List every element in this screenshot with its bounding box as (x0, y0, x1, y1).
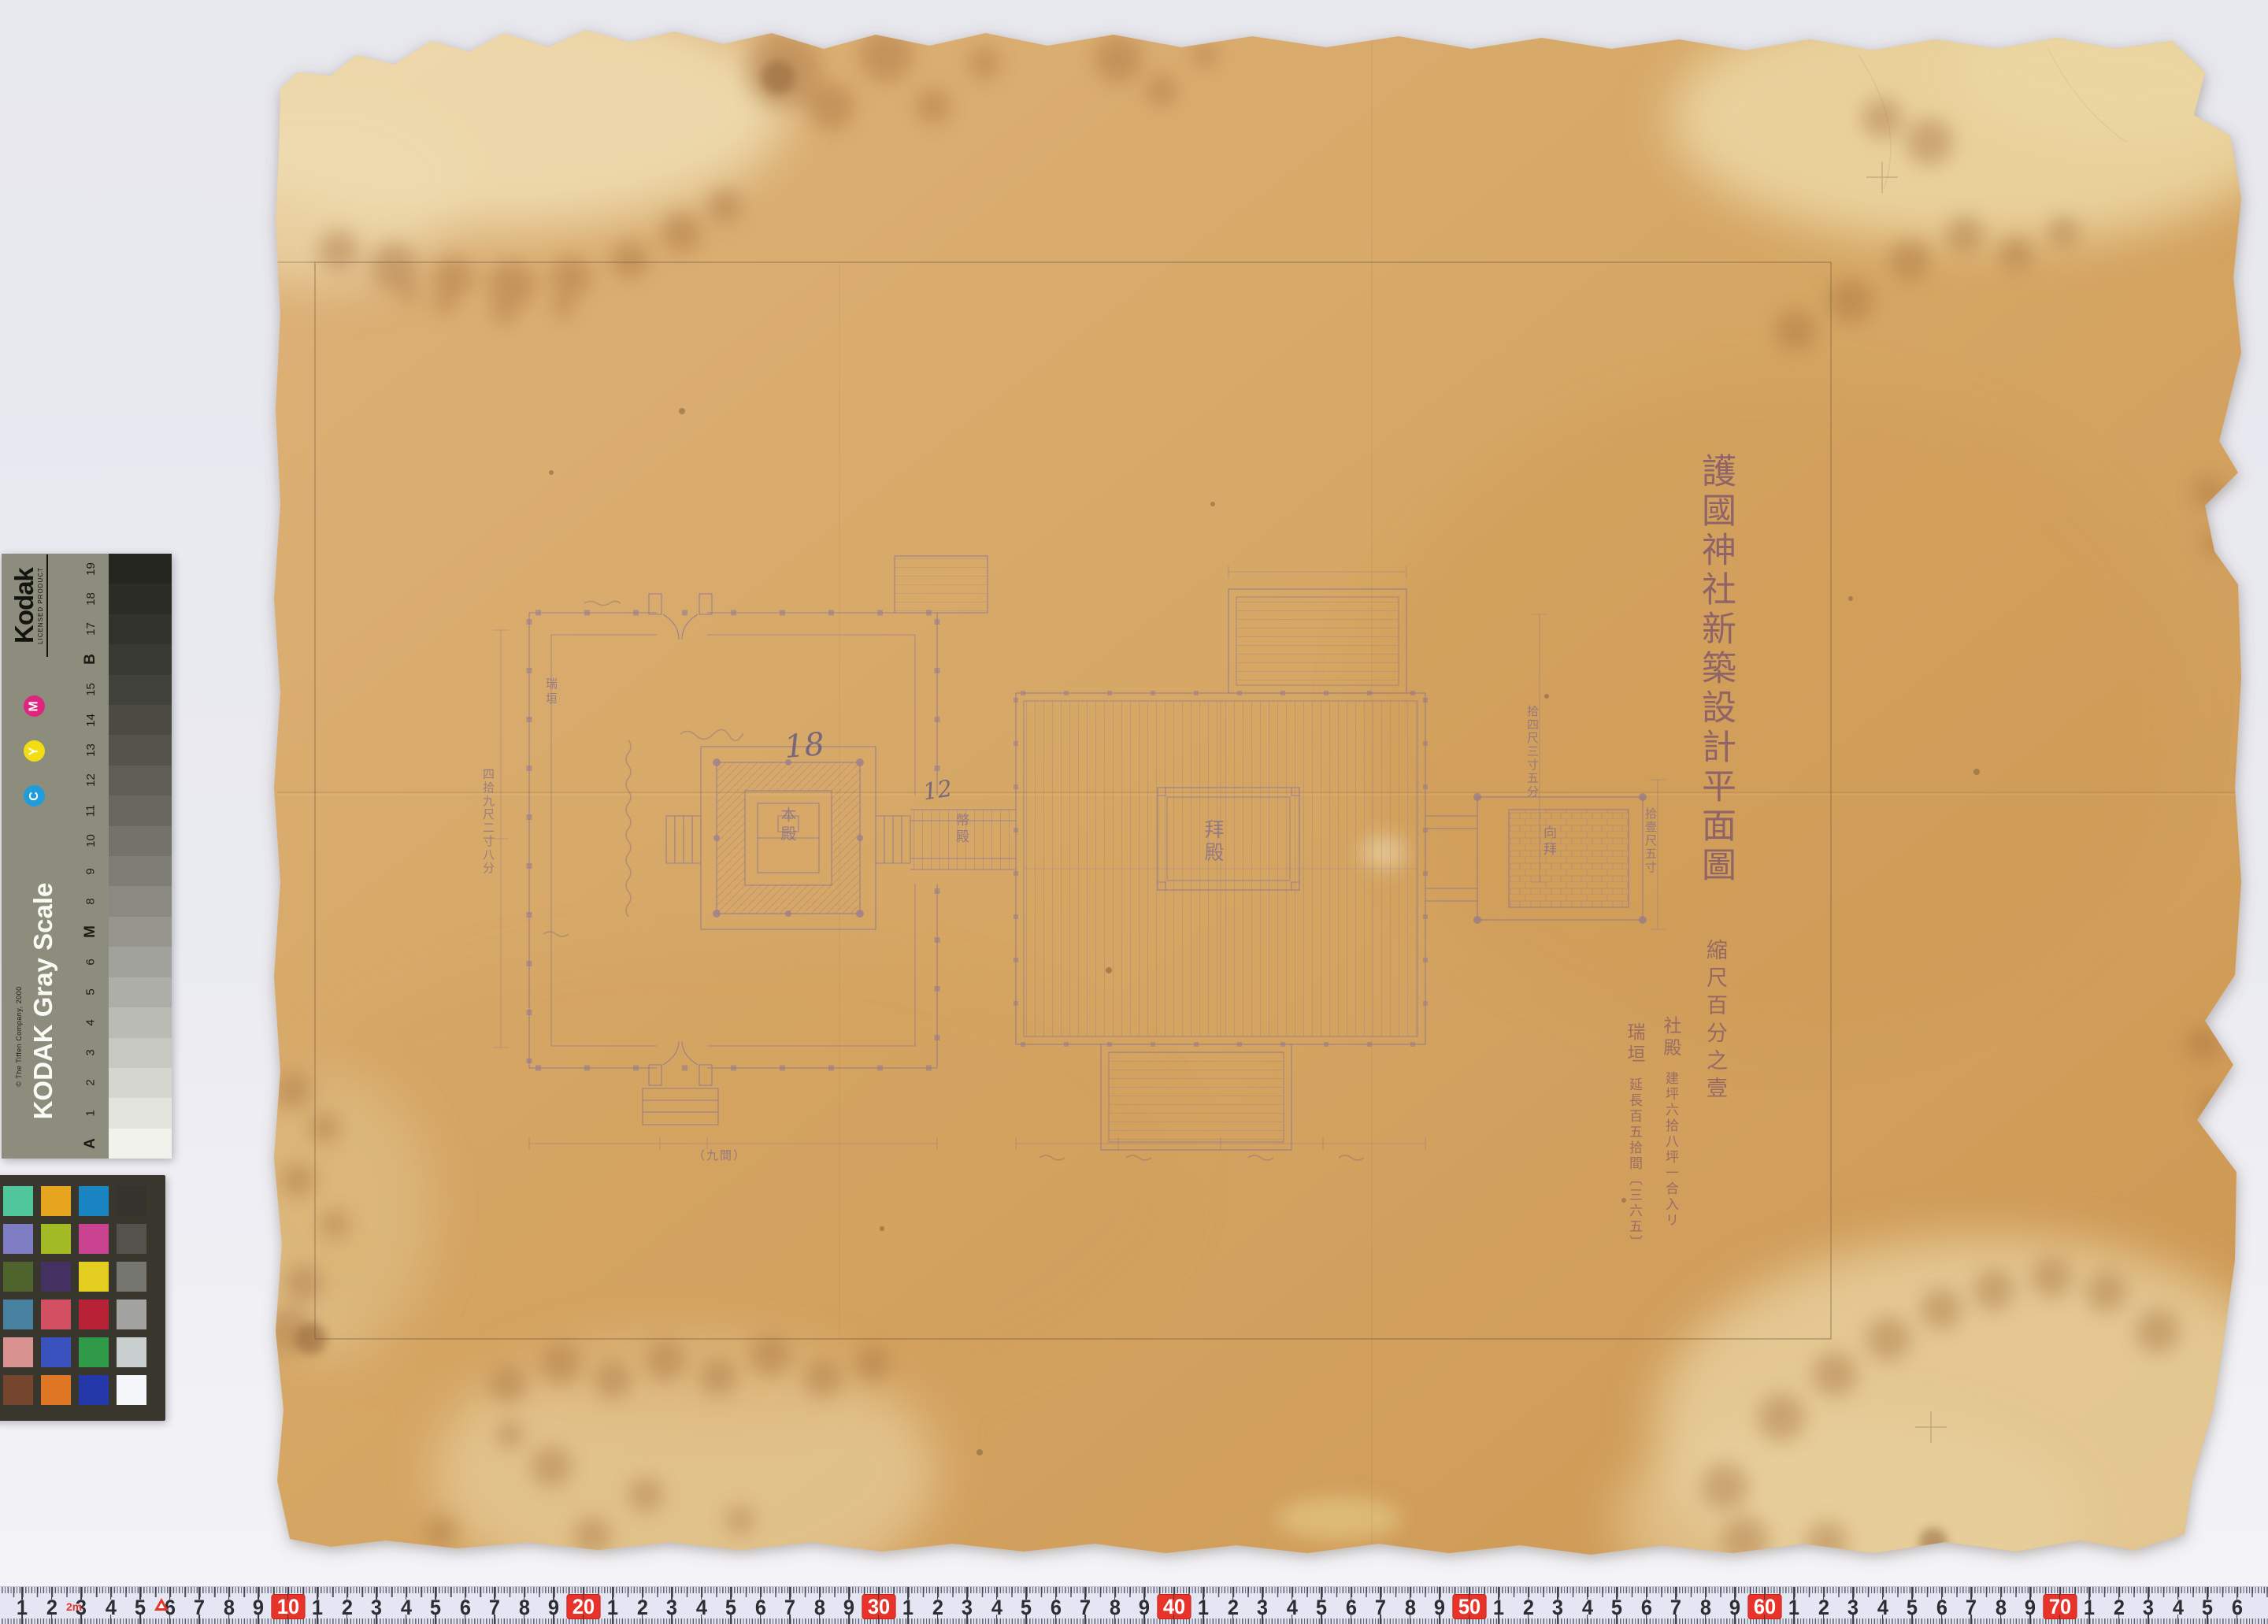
ruler-cm-tick (2118, 1615, 2120, 1624)
ruler-cm-tick (1793, 1587, 1795, 1600)
ruler-cm-tick (139, 1615, 141, 1624)
blueprint-paper (0, 0, 2268, 1624)
gray-scale-step-label: 11 (77, 795, 104, 825)
ruler-cm-tick (258, 1587, 259, 1600)
ruler-cm-tick (21, 1587, 23, 1600)
ruler-cm-tick (110, 1587, 112, 1600)
ruler-cm-tick (317, 1615, 318, 1624)
ruler-cm-tick (406, 1587, 407, 1600)
annotation-mizugaki-label: 瑞垣 (1624, 1022, 1644, 1066)
gray-scale-step-label: 14 (77, 705, 104, 735)
ruler-cm-tick (730, 1587, 732, 1600)
ruler-cm-tick (996, 1615, 998, 1624)
ruler-cm-tick (80, 1615, 82, 1624)
color-patch (3, 1337, 33, 1367)
ruler-cm-tick (1143, 1615, 1145, 1624)
gray-patch (109, 1038, 172, 1068)
ruler-triangle-mark-icon (154, 1598, 169, 1611)
y-ink-dot-icon: Y (24, 740, 45, 762)
ruler-cm-tick (1380, 1615, 1381, 1624)
ruler-cm-tick (701, 1587, 702, 1600)
color-patch (117, 1262, 146, 1292)
kodak-brand-block: Kodak LICENSED PRODUCT (12, 554, 53, 657)
ruler-cm-tick (878, 1587, 880, 1600)
gray-patch (109, 826, 172, 856)
ruler-cm-tick (1941, 1615, 1943, 1624)
ruler-cm-tick (1351, 1587, 1352, 1600)
color-patch (3, 1300, 33, 1329)
ruler-cm-tick (1321, 1615, 1322, 1624)
ruler-cm-tick (1705, 1587, 1707, 1600)
ruler-cm-tick (2148, 1587, 2149, 1600)
ruler-cm-tick (524, 1587, 525, 1600)
gray-scale-step-label: 19 (77, 554, 104, 584)
gray-patch (109, 614, 172, 644)
cmy-dots: MYC (24, 695, 47, 821)
gray-scale-copyright: © The Tiffen Company, 2000 (14, 946, 25, 1127)
ruler-cm-tick (1055, 1615, 1057, 1624)
ruler-cm-tick (1941, 1587, 1943, 1600)
ruler-cm-tick (110, 1615, 112, 1624)
ruler-cm-tick (1970, 1615, 1972, 1624)
gray-scale-step-label: A (77, 1129, 104, 1159)
ruler-cm-tick (2118, 1587, 2120, 1600)
ruler-cm-tick (1764, 1615, 1766, 1624)
ruler-cm-tick (937, 1615, 939, 1624)
ruler-cm-tick (671, 1615, 673, 1624)
ruler-cm-tick (1439, 1587, 1440, 1600)
ruler-cm-tick (1410, 1615, 1411, 1624)
dimension-left-text: 四拾九尺二寸八分 (480, 768, 497, 925)
gray-patch (109, 1129, 172, 1159)
gray-scale-step-label: 2 (77, 1068, 104, 1098)
ruler-cm-tick (51, 1587, 53, 1600)
annotation-mizugaki-value: 延長百五拾間〔三六五〕 (1626, 1077, 1642, 1251)
ruler-cm-tick (1262, 1587, 1263, 1600)
ruler-cm-tick (1528, 1587, 1529, 1600)
ruler-cm-tick (2088, 1615, 2090, 1624)
color-patch (117, 1186, 146, 1216)
ruler-cm-tick (287, 1587, 289, 1600)
ruler-cm-tick (583, 1587, 584, 1600)
measuring-ruler: 1234567891012345678920123456789301234567… (0, 1586, 2268, 1624)
ruler-cm-tick (465, 1615, 466, 1624)
ruler-cm-tick (1439, 1615, 1440, 1624)
ruler-cm-tick (1143, 1587, 1145, 1600)
ruler-cm-tick (228, 1587, 230, 1600)
ruler-cm-tick (465, 1587, 466, 1600)
annotation-shaden-value: 建坪六拾八坪一合入リ (1662, 1071, 1678, 1229)
ruler-cm-tick (1557, 1587, 1558, 1600)
gray-patch (109, 1098, 172, 1128)
ruler-cm-tick (169, 1587, 171, 1600)
ruler-cm-tick (907, 1587, 909, 1600)
gray-scale-step-label: 13 (77, 735, 104, 765)
ruler-cm-tick (21, 1615, 23, 1624)
room-label-haiden: 拜殿 (1199, 819, 1227, 898)
ruler-cm-tick (789, 1587, 791, 1600)
ruler-cm-tick (966, 1615, 968, 1624)
room-label-honden: 本殿 (776, 806, 799, 877)
annotation-shaden: 社殿建坪六拾八坪一合入リ (1657, 1016, 1684, 1347)
ruler-cm-tick (1882, 1615, 1884, 1624)
ruler-cm-tick (2000, 1587, 2002, 1600)
color-patch (79, 1262, 109, 1292)
ruler-cm-tick (2177, 1615, 2179, 1624)
ruler-cm-tick (642, 1587, 643, 1600)
ruler-cm-tick (1351, 1615, 1352, 1624)
kodak-logo: Kodak (12, 554, 37, 657)
ruler-cm-tick (1823, 1587, 1825, 1600)
ruler-cm-tick (1114, 1587, 1116, 1600)
color-patch (3, 1375, 33, 1405)
ruler-cm-tick (2029, 1615, 2031, 1624)
color-patch (117, 1337, 146, 1367)
gray-scale-step-label: 10 (77, 826, 104, 856)
ruler-cm-tick (1173, 1587, 1175, 1600)
ruler-cm-tick (1675, 1587, 1677, 1600)
pencil-mark-18: 18 (783, 726, 826, 766)
ruler-cm-tick (346, 1615, 348, 1624)
ruler-cm-tick (2207, 1587, 2208, 1600)
gray-scale-step-label: 6 (77, 947, 104, 977)
drawing-title: 護國神社新築設計平面圖 (1690, 453, 1740, 933)
room-label-mizugaki: 瑞垣 (543, 677, 560, 726)
ruler-cm-tick (406, 1615, 407, 1624)
ruler-cm-tick (139, 1587, 141, 1600)
gray-patch (109, 1007, 172, 1037)
ruler-cm-tick (789, 1615, 791, 1624)
ruler-cm-tick (848, 1615, 850, 1624)
ruler-cm-tick (819, 1587, 821, 1600)
color-patch (79, 1186, 109, 1216)
ruler-cm-tick (1616, 1615, 1618, 1624)
gray-scale-labels: 191817B15141312111098M654321A (77, 554, 104, 1159)
kodak-licensed-product-label: LICENSED PRODUCT (37, 554, 48, 657)
ruler-cm-tick (1203, 1587, 1204, 1600)
color-patch (117, 1300, 146, 1329)
ruler-cm-tick (1734, 1587, 1736, 1600)
color-patch (79, 1337, 109, 1367)
gray-patch (109, 735, 172, 765)
kodak-gray-scale-card: Kodak LICENSED PRODUCT KODAK Gray Scale … (2, 554, 172, 1159)
gray-patch (109, 795, 172, 825)
ruler-cm-tick (1469, 1587, 1470, 1600)
ruler-cm-tick (376, 1587, 377, 1600)
dimension-bottom-text: （九間） (693, 1147, 747, 1163)
ruler-cm-tick (1528, 1615, 1529, 1624)
scale-note: 縮尺百分之壹 (1699, 939, 1730, 1136)
annotation-shaden-label: 社殿 (1660, 1016, 1681, 1060)
ruler-cm-tick (80, 1587, 82, 1600)
ruler-cm-tick (2088, 1587, 2090, 1600)
gray-patch (109, 584, 172, 614)
ruler-cm-tick (1823, 1615, 1825, 1624)
ruler-cm-tick (642, 1615, 643, 1624)
ruler-cm-tick (1616, 1587, 1618, 1600)
ruler-cm-tick (1380, 1587, 1381, 1600)
gray-scale-step-label: 4 (77, 1007, 104, 1037)
ruler-cm-tick (198, 1615, 200, 1624)
gray-patch (109, 947, 172, 977)
gray-patch (109, 554, 172, 584)
room-label-kohai: 向拜 (1539, 825, 1558, 885)
ruler-meter-label: 2m (66, 1600, 82, 1613)
ruler-cm-tick (1734, 1615, 1736, 1624)
ruler-cm-tick (346, 1587, 348, 1600)
ruler-cm-tick (1055, 1587, 1057, 1600)
ruler-cm-tick (1262, 1615, 1263, 1624)
annotation-mizugaki: 瑞垣延長百五拾間〔三六五〕 (1621, 1022, 1647, 1353)
color-patch (41, 1375, 71, 1405)
ruler-cm-tick (1173, 1615, 1175, 1624)
ruler-cm-tick (2029, 1587, 2031, 1600)
ruler-cm-tick (966, 1587, 968, 1600)
gray-patch (109, 886, 172, 916)
ruler-cm-tick (1852, 1615, 1854, 1624)
scanned-document-photo: 護國神社新築設計平面圖 縮尺百分之壹 社殿建坪六拾八坪一合入リ 瑞垣延長百五拾間… (0, 0, 2268, 1624)
ruler-cm-tick (907, 1615, 909, 1624)
ruler-cm-tick (2236, 1615, 2238, 1624)
ruler-cm-tick (1498, 1587, 1499, 1600)
ruler-cm-tick (1498, 1615, 1499, 1624)
ruler-cm-tick (583, 1615, 584, 1624)
ruler-cm-tick (2059, 1587, 2061, 1600)
ruler-cm-tick (819, 1615, 821, 1624)
ruler-cm-tick (1025, 1587, 1027, 1600)
ruler-cm-tick (730, 1615, 732, 1624)
ruler-cm-tick (878, 1615, 880, 1624)
color-checker-grid (3, 1186, 146, 1405)
ruler-cm-tick (1203, 1615, 1204, 1624)
ruler-cm-tick (1469, 1615, 1470, 1624)
ruler-cm-tick (701, 1615, 702, 1624)
gray-scale-step-label: 9 (77, 856, 104, 886)
pencil-mark-12: 12 (921, 775, 954, 806)
ruler-cm-tick (553, 1615, 554, 1624)
ruler-cm-tick (2000, 1615, 2002, 1624)
ruler-cm-tick (1232, 1587, 1234, 1600)
ruler-cm-tick (1646, 1587, 1647, 1600)
ruler-cm-tick (258, 1615, 259, 1624)
ruler-mm-ticks-top (0, 1587, 2268, 1593)
gray-patch (109, 856, 172, 886)
color-patch (41, 1186, 71, 1216)
gray-scale-step-label: M (77, 917, 104, 947)
ruler-cm-tick (671, 1587, 673, 1600)
ruler-cm-tick (435, 1615, 436, 1624)
gray-scale-strip (109, 554, 172, 1159)
m-ink-dot-icon: M (24, 695, 45, 717)
ruler-cm-tick (1764, 1587, 1766, 1600)
color-patch (41, 1337, 71, 1367)
ruler-cm-tick (1025, 1615, 1027, 1624)
ruler-cm-tick (51, 1615, 53, 1624)
ruler-cm-tick (1084, 1587, 1086, 1600)
ruler-cm-tick (612, 1615, 613, 1624)
color-patch (79, 1300, 109, 1329)
ruler-cm-tick (1852, 1587, 1854, 1600)
color-patch (41, 1224, 71, 1254)
gray-patch (109, 705, 172, 735)
color-patch (79, 1224, 109, 1254)
ruler-cm-tick (198, 1587, 200, 1600)
color-patch (41, 1262, 71, 1292)
gray-patch (109, 766, 172, 795)
ruler-cm-tick (1970, 1587, 1972, 1600)
c-ink-dot-icon: C (24, 785, 45, 806)
ruler-cm-tick (1291, 1615, 1293, 1624)
gray-scale-step-label: 17 (77, 614, 104, 644)
ruler-cm-tick (1084, 1615, 1086, 1624)
ruler-cm-tick (228, 1615, 230, 1624)
gray-scale-step-label: B (77, 644, 104, 674)
ruler-cm-tick (553, 1587, 554, 1600)
ruler-cm-tick (2207, 1615, 2208, 1624)
gray-scale-step-label: 3 (77, 1037, 104, 1067)
color-checker-card (0, 1175, 165, 1421)
ruler-cm-tick (2236, 1587, 2238, 1600)
ruler-cm-tick (1911, 1615, 1913, 1624)
dimension-right-lower-text: 拾壹尺五寸 (1643, 807, 1659, 925)
gray-scale-step-label: 12 (77, 766, 104, 795)
ruler-cm-tick (1410, 1587, 1411, 1600)
ruler-cm-tick (1646, 1615, 1647, 1624)
gray-patch (109, 977, 172, 1007)
ruler-cm-tick (612, 1587, 613, 1600)
color-patch (3, 1262, 33, 1292)
color-patch (117, 1375, 146, 1405)
gray-scale-title: KODAK Gray Scale (28, 847, 59, 1155)
gray-patch (109, 644, 172, 674)
gray-patch (109, 1068, 172, 1098)
ruler-cm-tick (287, 1615, 289, 1624)
gray-scale-step-label: 1 (77, 1098, 104, 1128)
color-patch (117, 1224, 146, 1254)
ruler-cm-tick (1587, 1615, 1588, 1624)
ruler-cm-tick (2059, 1615, 2061, 1624)
color-patch (41, 1300, 71, 1329)
gray-patch (109, 675, 172, 705)
ruler-cm-tick (1291, 1587, 1293, 1600)
color-patch (3, 1224, 33, 1254)
gray-scale-step-label: 5 (77, 977, 104, 1007)
ruler-cm-tick (1557, 1615, 1558, 1624)
ruler-cm-tick (1793, 1615, 1795, 1624)
ruler-cm-tick (494, 1615, 495, 1624)
ruler-cm-tick (996, 1587, 998, 1600)
gray-scale-step-label: 18 (77, 584, 104, 614)
ruler-cm-tick (317, 1587, 318, 1600)
ruler-mm-ticks-bottom (0, 1618, 2268, 1624)
ruler-cm-tick (1114, 1615, 1116, 1624)
gray-scale-step-label: 15 (77, 675, 104, 705)
ruler-cm-tick (2148, 1615, 2149, 1624)
color-patch (3, 1186, 33, 1216)
ruler-cm-tick (494, 1587, 495, 1600)
room-label-heiden: 幣殿 (951, 813, 971, 873)
color-patch (79, 1375, 109, 1405)
ruler-cm-tick (760, 1615, 762, 1624)
ruler-cm-tick (848, 1587, 850, 1600)
ruler-cm-tick (1675, 1615, 1677, 1624)
ruler-cm-tick (937, 1587, 939, 1600)
ruler-cm-tick (376, 1615, 377, 1624)
ruler-cm-tick (1321, 1587, 1322, 1600)
gray-scale-step-label: 8 (77, 886, 104, 916)
ruler-cm-tick (2177, 1587, 2179, 1600)
ruler-cm-tick (169, 1615, 171, 1624)
ruler-cm-tick (1882, 1587, 1884, 1600)
ruler-cm-tick (524, 1615, 525, 1624)
ruler-cm-tick (760, 1587, 762, 1600)
ruler-cm-tick (1911, 1587, 1913, 1600)
gray-patch (109, 917, 172, 947)
ruler-cm-tick (1705, 1615, 1707, 1624)
ruler-cm-tick (1232, 1615, 1234, 1624)
ruler-cm-tick (1587, 1587, 1588, 1600)
ruler-cm-tick (435, 1587, 436, 1600)
